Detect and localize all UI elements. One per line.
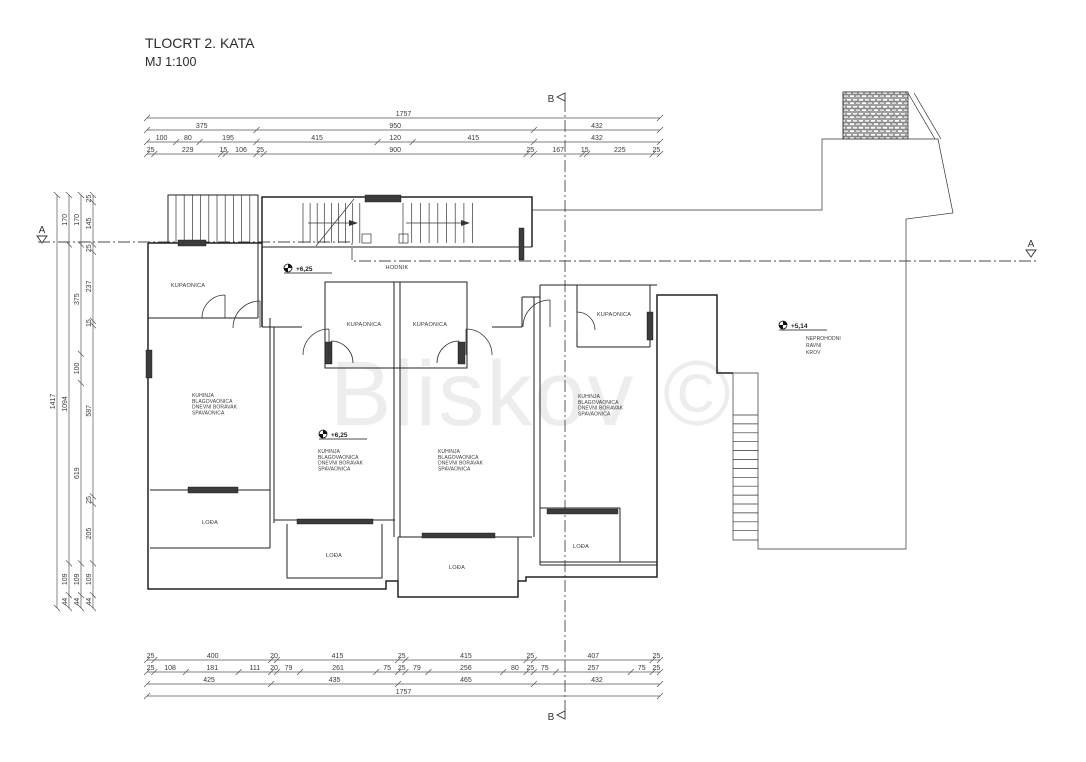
dim-label: 25 bbox=[652, 653, 660, 660]
dim-label: 44 bbox=[74, 598, 81, 606]
dim-label: 1417 bbox=[50, 394, 57, 410]
dim-label: 257 bbox=[587, 665, 599, 672]
section-letter: A bbox=[39, 225, 46, 236]
room-label-kupaonica-2: KUPAONICA bbox=[347, 322, 381, 328]
dim-label: 587 bbox=[86, 405, 93, 417]
section-marker-b-top: B bbox=[548, 93, 565, 105]
dim-label: 25 bbox=[256, 147, 264, 154]
dim-label: 25 bbox=[398, 653, 406, 660]
dim-label: 100 bbox=[156, 135, 168, 142]
elevation-label: +6,25 bbox=[331, 432, 348, 439]
dim-label: 25 bbox=[526, 653, 534, 660]
dim-label: 229 bbox=[182, 147, 194, 154]
dim-label: 432 bbox=[591, 135, 603, 142]
section-letter: B bbox=[548, 712, 555, 723]
dim-label: 1757 bbox=[396, 689, 412, 696]
dim-label: 25 bbox=[526, 147, 534, 154]
dim-label: 167 bbox=[552, 147, 564, 154]
unit-label-4: SPAVAONICA bbox=[578, 411, 611, 417]
dim-label: 145 bbox=[86, 217, 93, 229]
room-label-kupaonica-3: KUPAONICA bbox=[413, 322, 447, 328]
dim-label: 225 bbox=[614, 147, 626, 154]
plan-scale: MJ 1:100 bbox=[145, 55, 196, 69]
elevation-label: +5,14 bbox=[791, 323, 808, 330]
dim-label: 195 bbox=[222, 135, 234, 142]
dim-label: 432 bbox=[591, 677, 603, 684]
room-label-loda-1: LOĐA bbox=[202, 520, 218, 526]
dim-label: 1757 bbox=[396, 111, 412, 118]
dim-label: 25 bbox=[147, 147, 155, 154]
section-marker-a-left: A bbox=[37, 225, 47, 243]
roof-label: KROV bbox=[806, 350, 821, 356]
stone-wall-hatch bbox=[843, 92, 908, 139]
floorplan-svg: Bliskov © TLOCRT 2. KATA MJ 1:100 bbox=[0, 0, 1086, 762]
dim-label: 20 bbox=[270, 665, 278, 672]
dim-label: 170 bbox=[74, 214, 81, 226]
dim-label: 375 bbox=[74, 293, 81, 305]
dim-label: 432 bbox=[591, 123, 603, 130]
dim-label: 415 bbox=[332, 653, 344, 660]
dim-label: 181 bbox=[206, 665, 218, 672]
dim-label: 25 bbox=[147, 665, 155, 672]
dim-label: 109 bbox=[86, 573, 93, 585]
roof-label: NEPROHODNI bbox=[806, 336, 841, 342]
dim-label: 415 bbox=[460, 653, 472, 660]
dim-label: 108 bbox=[164, 665, 176, 672]
floorplan-canvas: Bliskov © TLOCRT 2. KATA MJ 1:100 bbox=[0, 0, 1086, 762]
dim-label: 79 bbox=[413, 665, 421, 672]
dim-label: 80 bbox=[511, 665, 519, 672]
dim-label: 400 bbox=[207, 653, 219, 660]
unit-label-2: SPAVAONICA bbox=[318, 466, 351, 472]
dim-label: 75 bbox=[638, 665, 646, 672]
dim-label: 435 bbox=[329, 677, 341, 684]
dim-label: 237 bbox=[86, 280, 93, 292]
dim-label: 20 bbox=[270, 653, 278, 660]
dim-label: 25 bbox=[652, 147, 660, 154]
dim-label: 205 bbox=[86, 528, 93, 540]
dim-label: 111 bbox=[250, 665, 261, 672]
dim-label: 25 bbox=[398, 665, 406, 672]
dim-label: 109 bbox=[74, 573, 81, 585]
elevation-label: +6,25 bbox=[296, 266, 313, 273]
dim-label: 106 bbox=[235, 147, 247, 154]
room-label-hodnik: HODNIK bbox=[386, 265, 409, 271]
dim-label: 44 bbox=[86, 598, 93, 606]
dim-label: 25 bbox=[147, 653, 155, 660]
section-marker-b-bottom: B bbox=[548, 711, 565, 723]
dim-label: 415 bbox=[467, 135, 479, 142]
dim-label: 25 bbox=[652, 665, 660, 672]
section-letter: A bbox=[1028, 239, 1035, 250]
dim-label: 170 bbox=[62, 214, 69, 226]
unit-label-1: SPAVAONICA bbox=[192, 410, 225, 416]
section-letter: B bbox=[548, 94, 555, 105]
dim-label: 619 bbox=[74, 467, 81, 479]
dim-label: 465 bbox=[460, 677, 472, 684]
dim-label: 15 bbox=[86, 319, 93, 327]
dim-label: 415 bbox=[311, 135, 323, 142]
room-label-loda-3: LOĐA bbox=[449, 565, 465, 571]
dim-label: 44 bbox=[62, 598, 69, 606]
room-label-loda-2: LOĐA bbox=[326, 553, 342, 559]
dim-label: 75 bbox=[383, 665, 391, 672]
dim-label: 120 bbox=[389, 135, 401, 142]
dim-label: 950 bbox=[389, 123, 401, 130]
dim-label: 375 bbox=[196, 123, 208, 130]
plan-title: TLOCRT 2. KATA bbox=[145, 35, 255, 51]
section-marker-a-right: A bbox=[1026, 239, 1036, 257]
watermark: Bliskov © bbox=[330, 343, 733, 445]
dim-label: 261 bbox=[332, 665, 344, 672]
dim-label: 79 bbox=[285, 665, 293, 672]
dim-label: 407 bbox=[587, 653, 599, 660]
dim-label: 256 bbox=[460, 665, 472, 672]
unit-label-3: SPAVAONICA bbox=[438, 466, 471, 472]
roof-label: RAVNI bbox=[806, 343, 821, 349]
room-label-kupaonica-1: KUPAONICA bbox=[171, 283, 205, 289]
dim-label: 25 bbox=[526, 665, 534, 672]
dim-label: 900 bbox=[389, 147, 401, 154]
dim-label: 80 bbox=[184, 135, 192, 142]
dim-label: 75 bbox=[541, 665, 549, 672]
room-label-kupaonica-4: KUPAONICA bbox=[597, 312, 631, 318]
dim-label: 109 bbox=[62, 573, 69, 585]
room-label-loda-4: LOĐA bbox=[573, 544, 589, 550]
dim-label: 1094 bbox=[62, 396, 69, 412]
dim-label: 425 bbox=[203, 677, 215, 684]
dim-label: 100 bbox=[74, 362, 81, 374]
